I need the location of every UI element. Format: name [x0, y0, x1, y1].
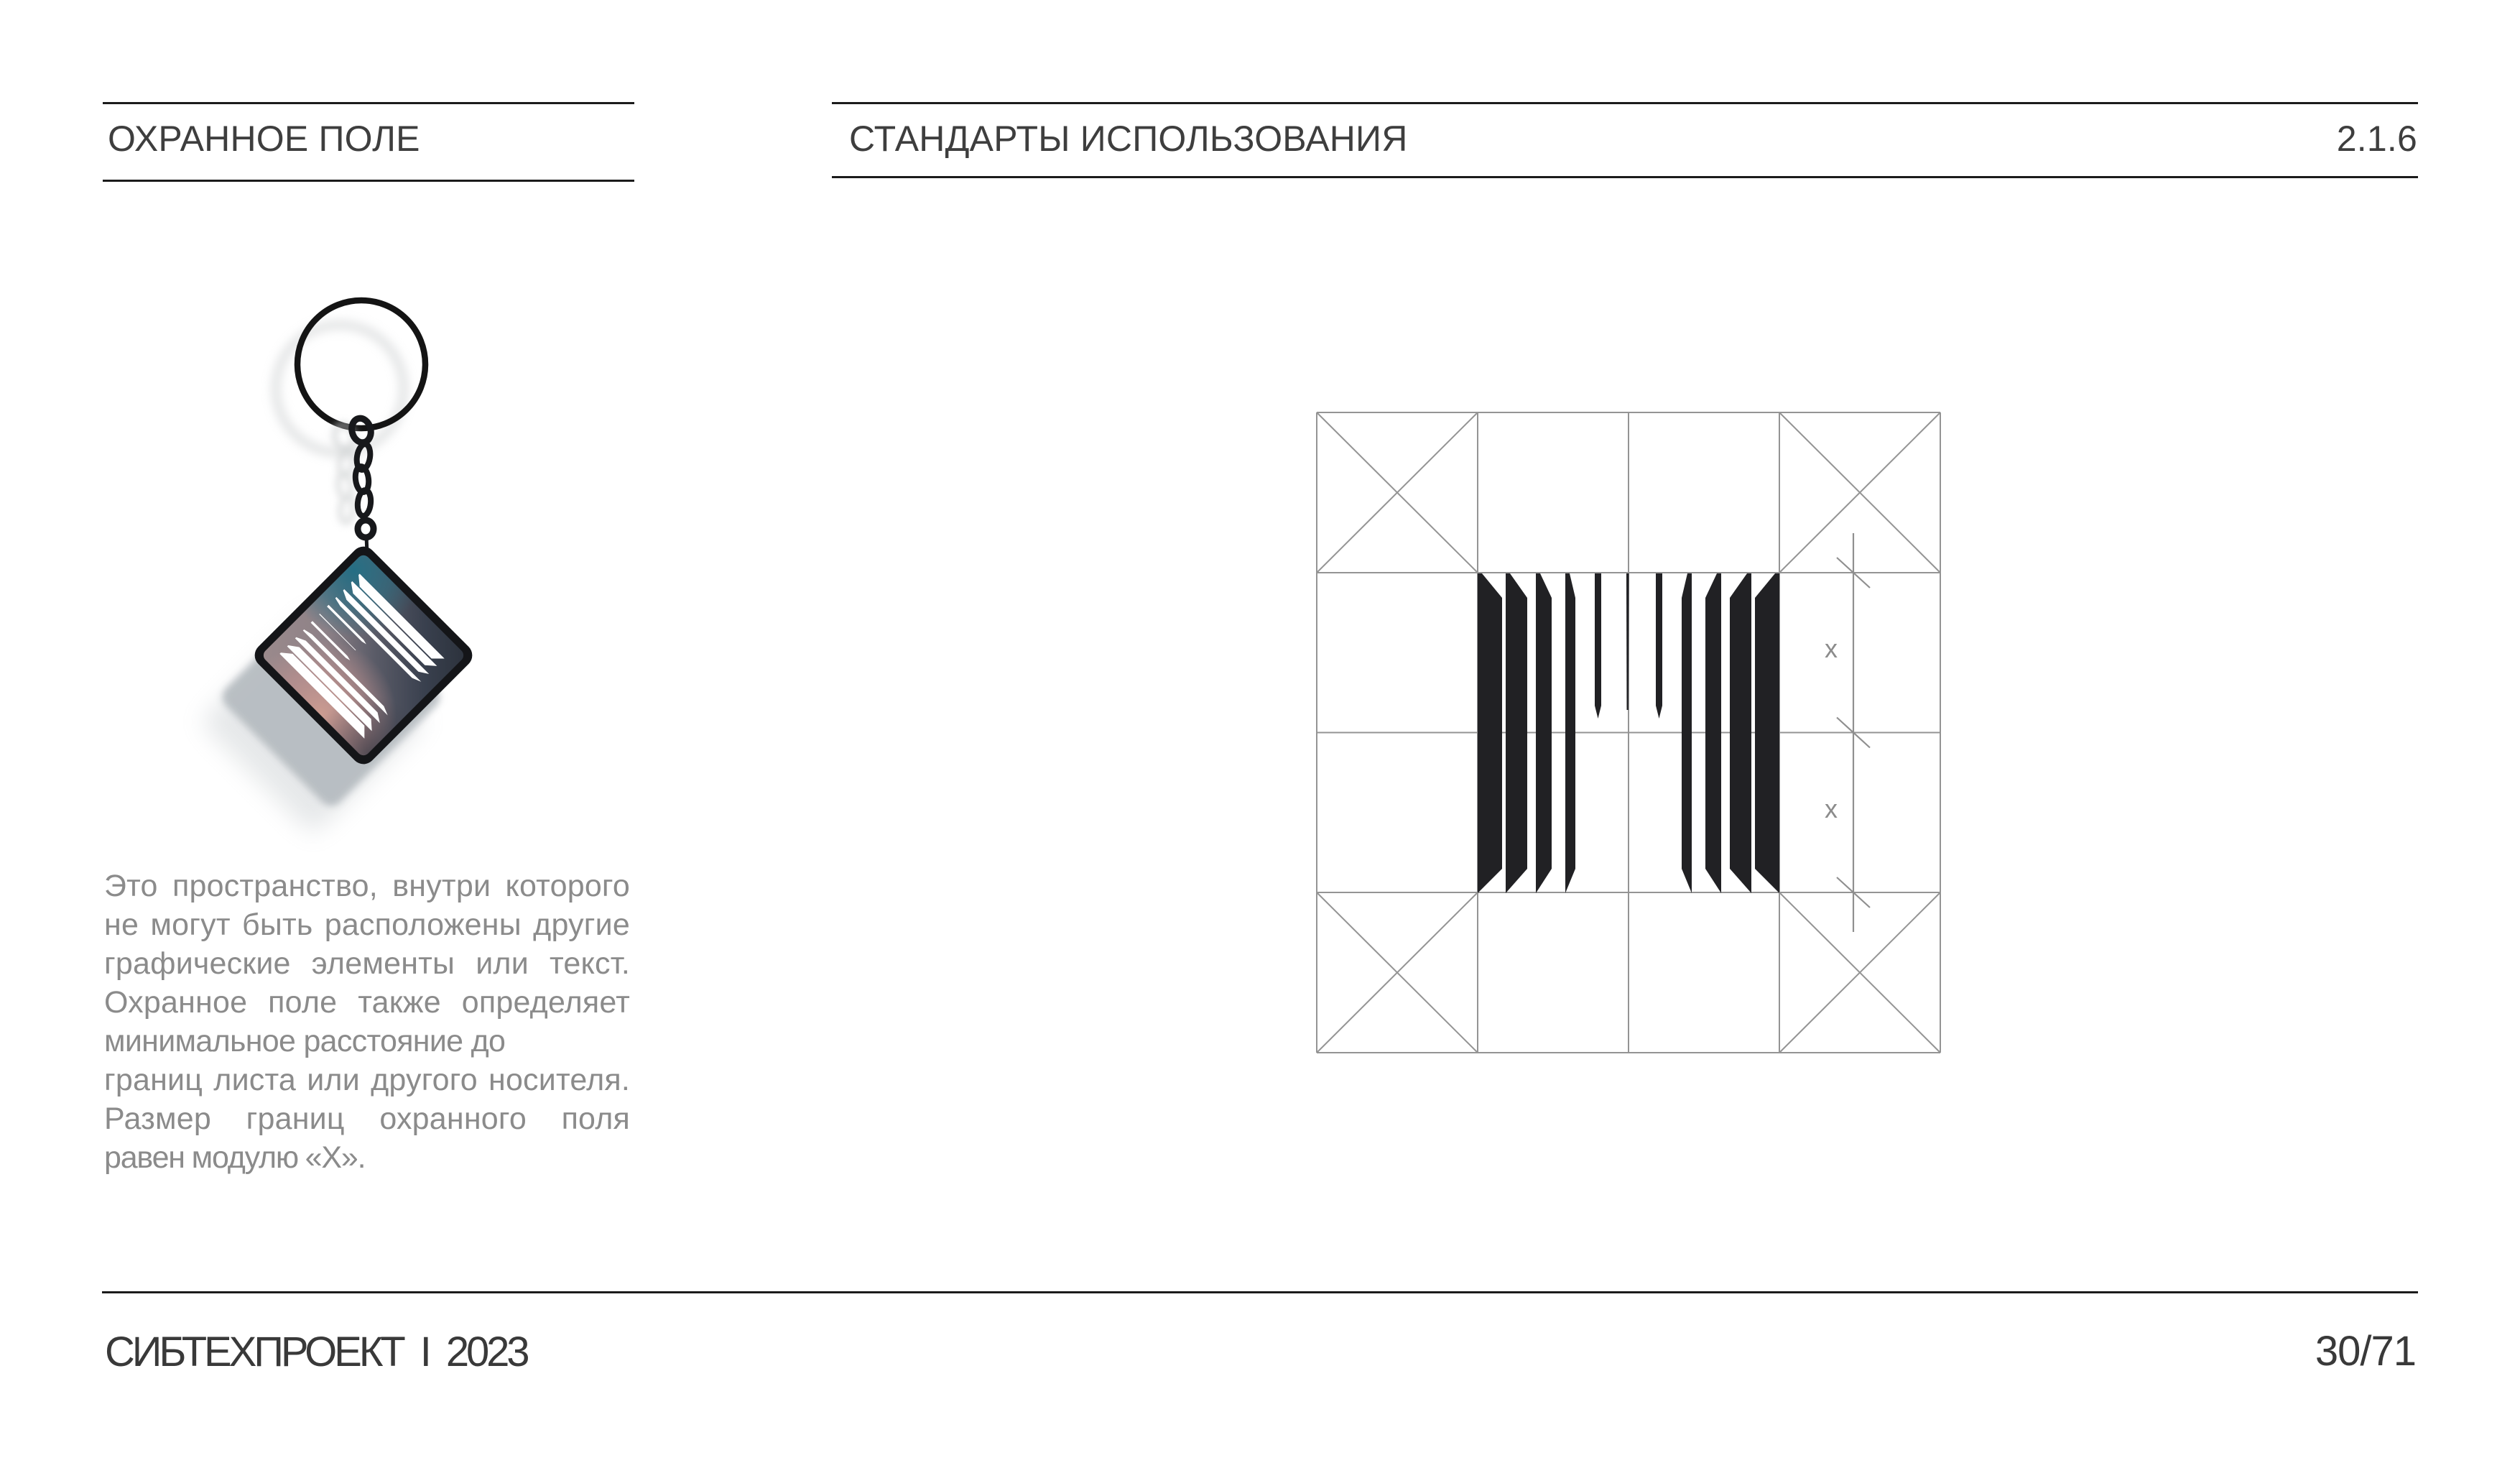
svg-text:x: x: [1825, 794, 1838, 823]
svg-text:x: x: [1825, 634, 1838, 663]
